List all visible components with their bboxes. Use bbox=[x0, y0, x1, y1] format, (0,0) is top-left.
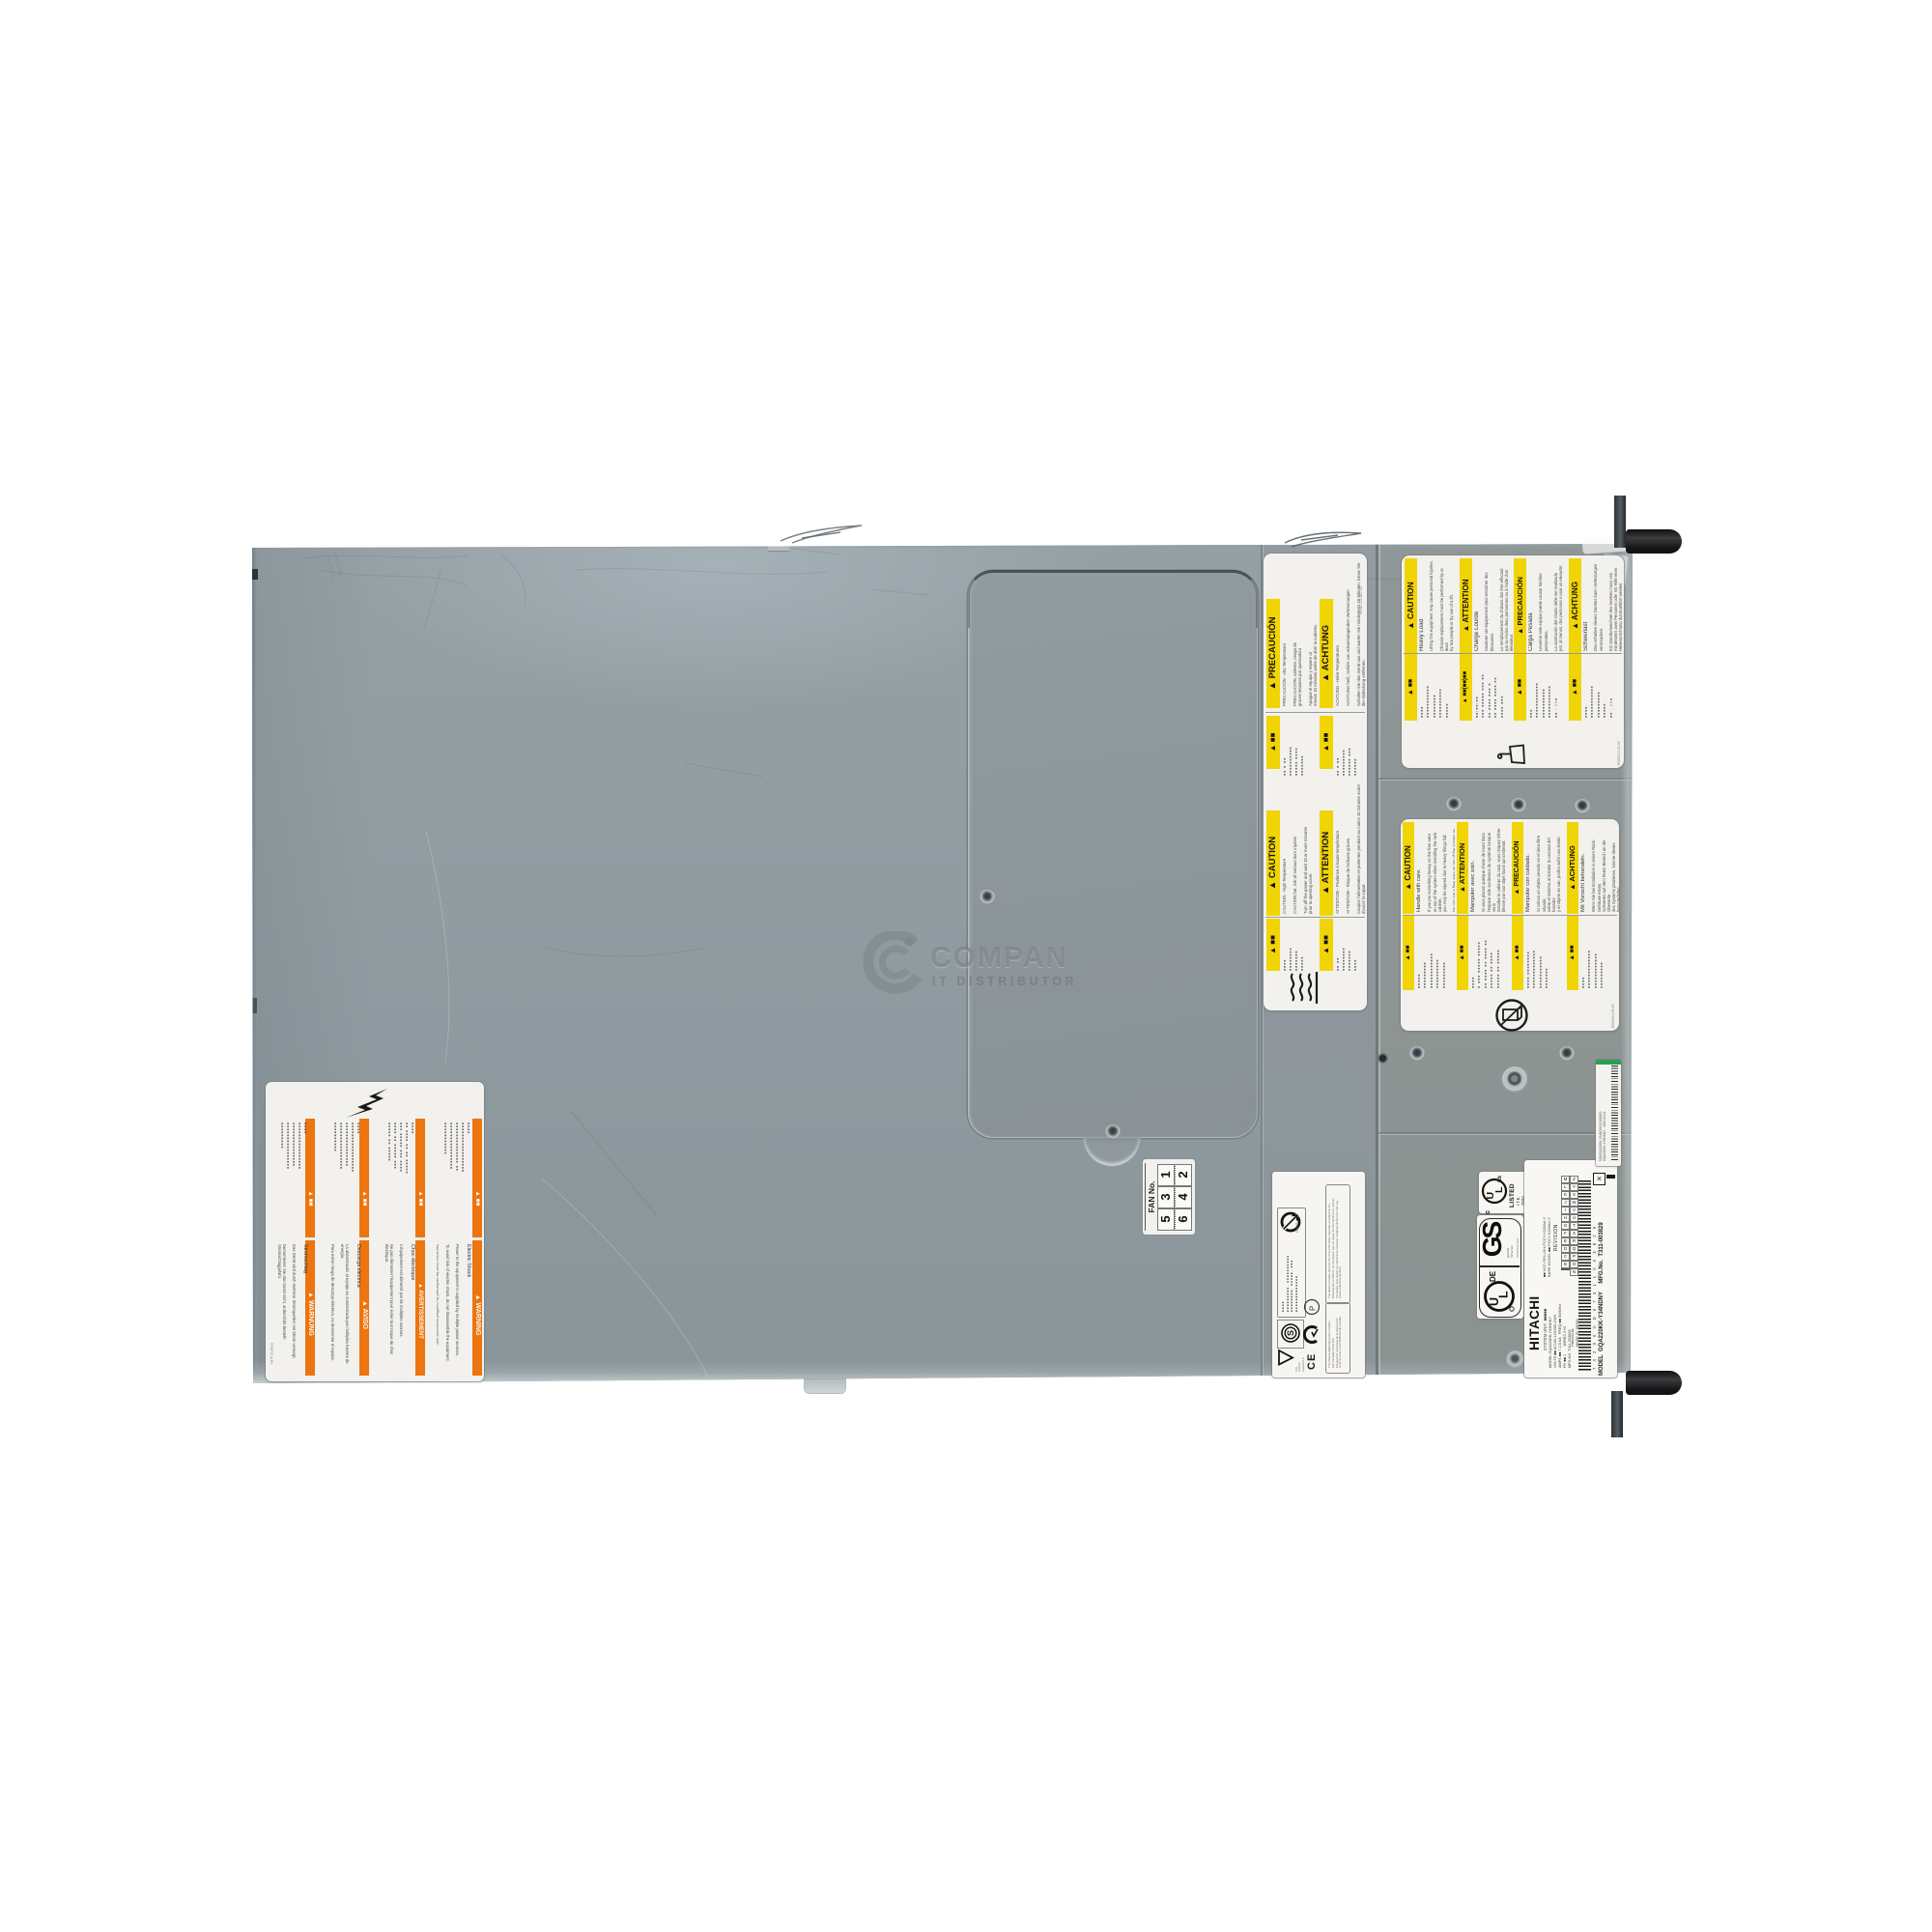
svg-text:P: P bbox=[1309, 1306, 1318, 1311]
svg-text:S: S bbox=[1286, 1330, 1295, 1336]
svg-text:L: L bbox=[1493, 1186, 1505, 1193]
svg-text:L: L bbox=[1497, 1291, 1511, 1298]
